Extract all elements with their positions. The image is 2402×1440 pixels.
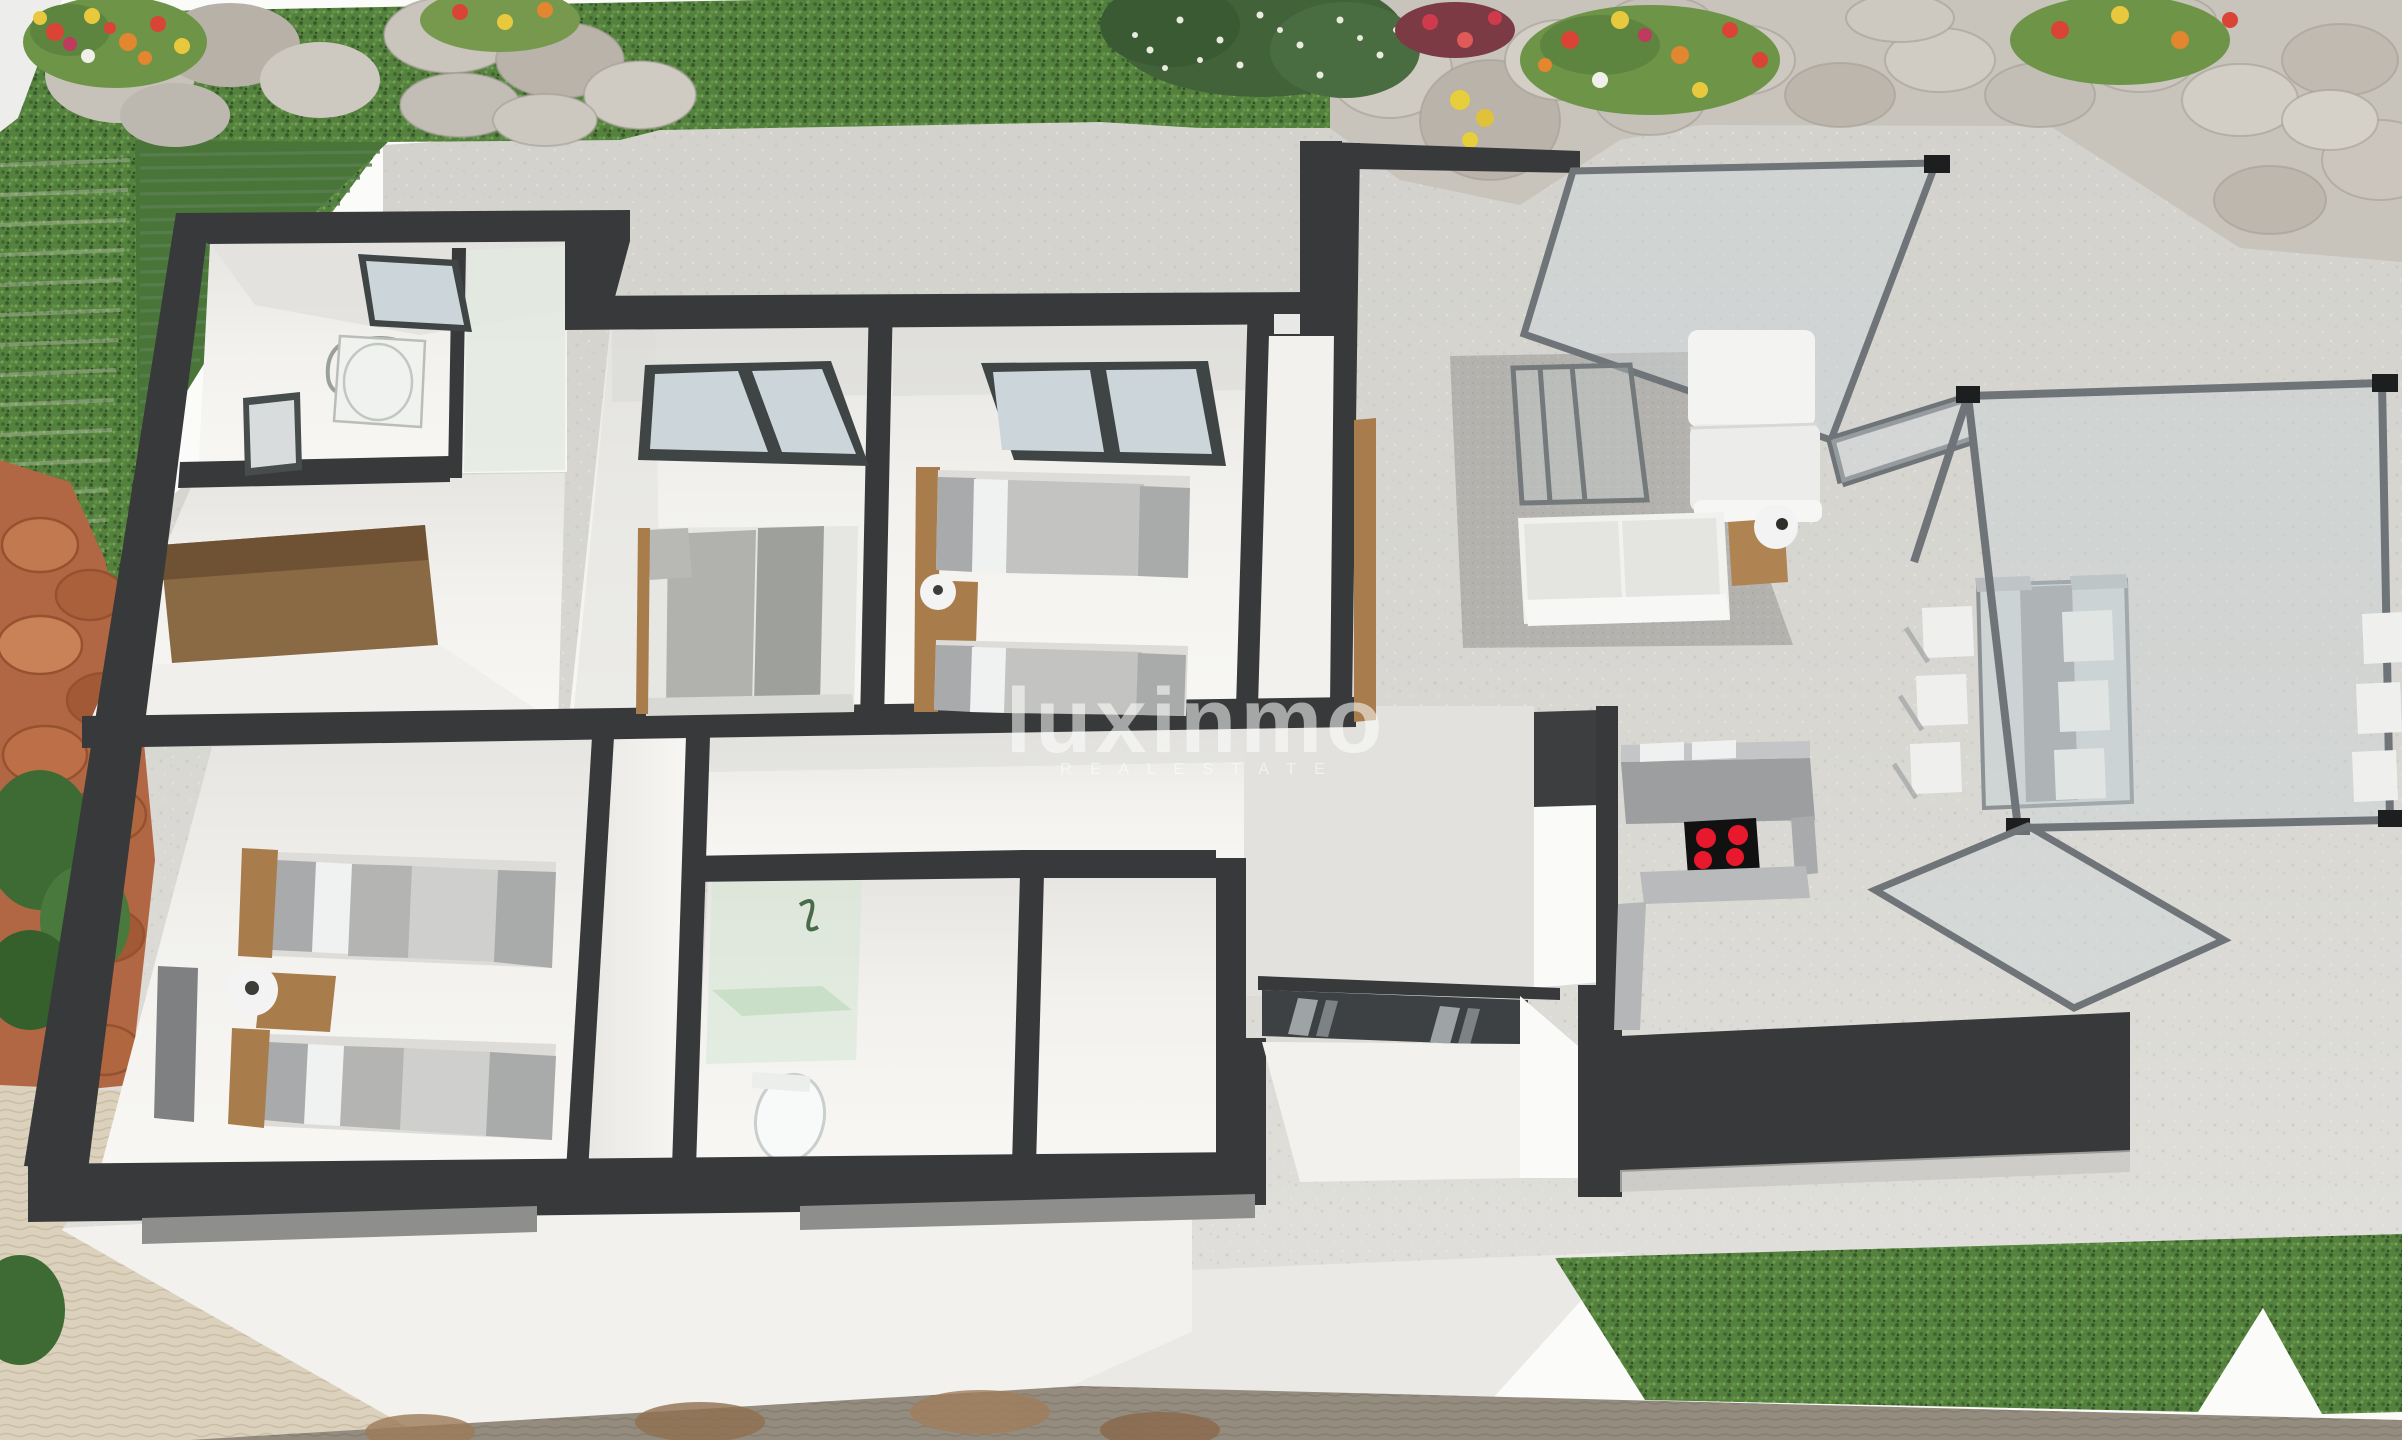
- svg-text:R E A L E S T A T E: R E A L E S T A T E: [1060, 761, 1332, 778]
- svg-text:luxinmo: luxinmo: [1006, 670, 1387, 772]
